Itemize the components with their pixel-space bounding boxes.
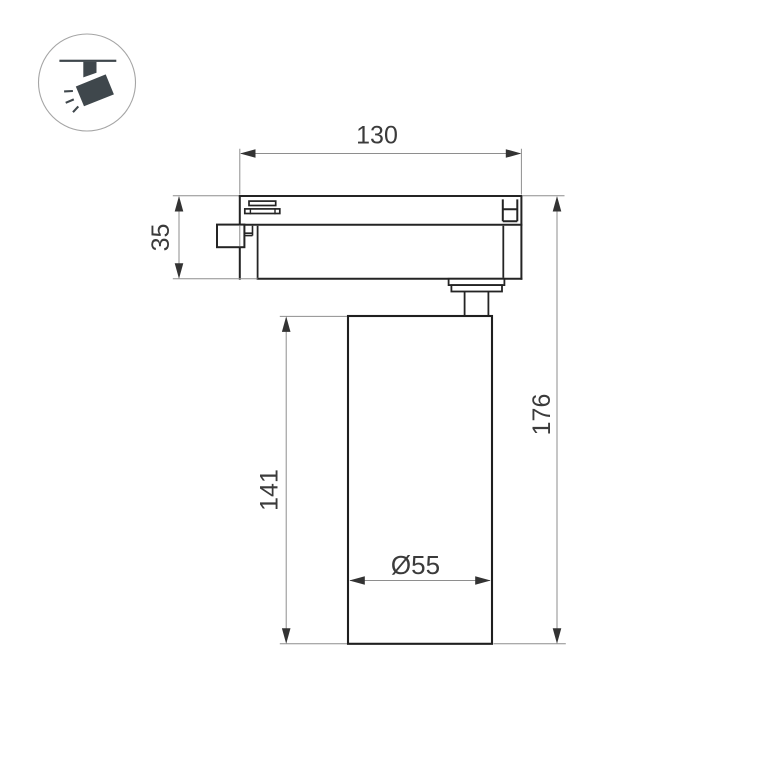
svg-text:Ø55: Ø55 <box>391 550 440 580</box>
svg-text:35: 35 <box>147 224 175 252</box>
svg-text:141: 141 <box>256 469 284 511</box>
svg-text:130: 130 <box>356 121 398 149</box>
svg-text:176: 176 <box>528 394 556 436</box>
